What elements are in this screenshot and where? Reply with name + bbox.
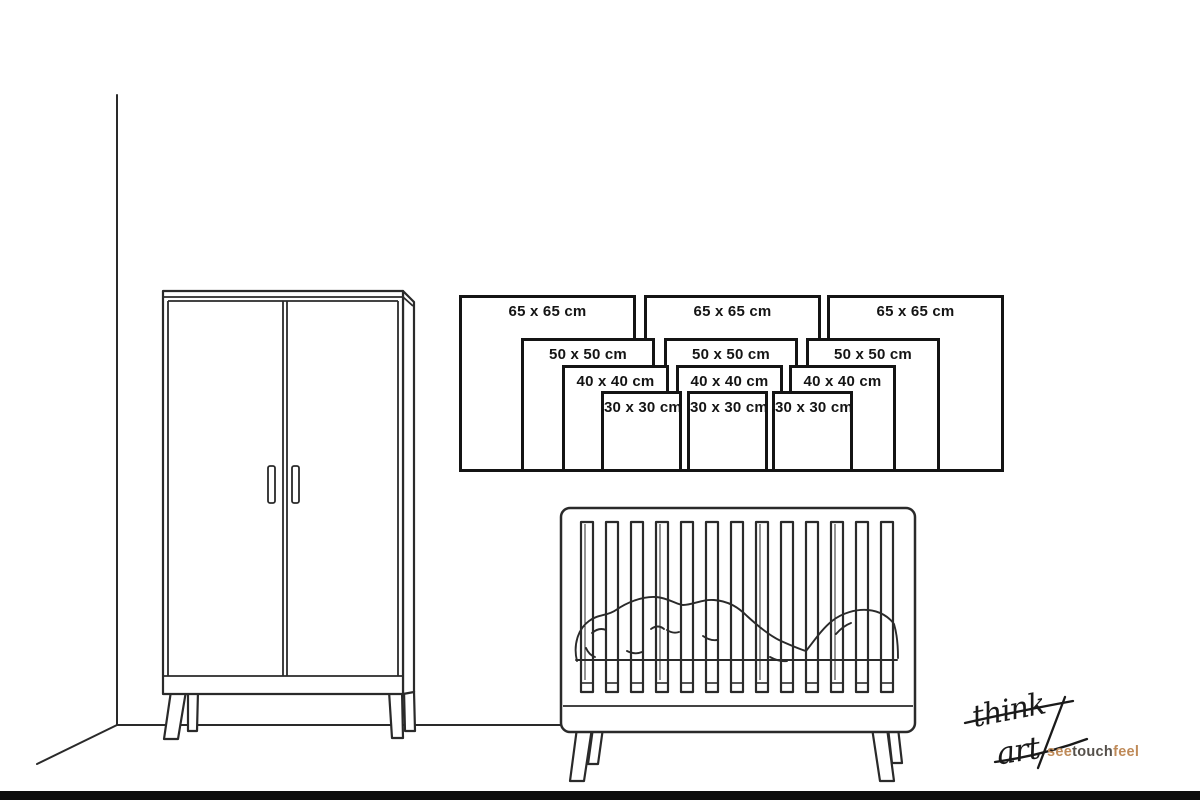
size-square-label: 30 x 30 cm <box>690 394 765 416</box>
illustration-canvas: 65 x 65 cm65 x 65 cm65 x 65 cm50 x 50 cm… <box>0 0 1200 800</box>
size-square-label: 40 x 40 cm <box>679 368 780 390</box>
size-square-label: 30 x 30 cm <box>775 394 850 416</box>
logo-tagline-feel: feel <box>1113 744 1139 760</box>
bottom-black-bar <box>0 791 1200 800</box>
size-square-label: 50 x 50 cm <box>524 341 652 363</box>
logo-tagline-touch: touch <box>1072 744 1113 760</box>
size-square-label: 40 x 40 cm <box>792 368 893 390</box>
size-square-label: 40 x 40 cm <box>565 368 666 390</box>
size-square-left-30: 30 x 30 cm <box>601 391 682 472</box>
size-square-label: 50 x 50 cm <box>809 341 937 363</box>
logo-script-think: think <box>969 687 1048 735</box>
size-square-right-30: 30 x 30 cm <box>772 391 853 472</box>
size-square-label: 30 x 30 cm <box>604 394 679 416</box>
size-square-label: 50 x 50 cm <box>667 341 795 363</box>
size-square-label: 65 x 65 cm <box>647 298 818 320</box>
size-square-middle-30: 30 x 30 cm <box>687 391 768 472</box>
size-square-label: 65 x 65 cm <box>830 298 1001 320</box>
think-art-logo: think art seetouchfeel <box>935 665 1200 780</box>
logo-script-art: art <box>994 730 1043 772</box>
logo-tagline-see: see <box>1047 744 1072 760</box>
logo-tagline: seetouchfeel <box>1047 744 1139 760</box>
size-square-label: 65 x 65 cm <box>462 298 633 320</box>
